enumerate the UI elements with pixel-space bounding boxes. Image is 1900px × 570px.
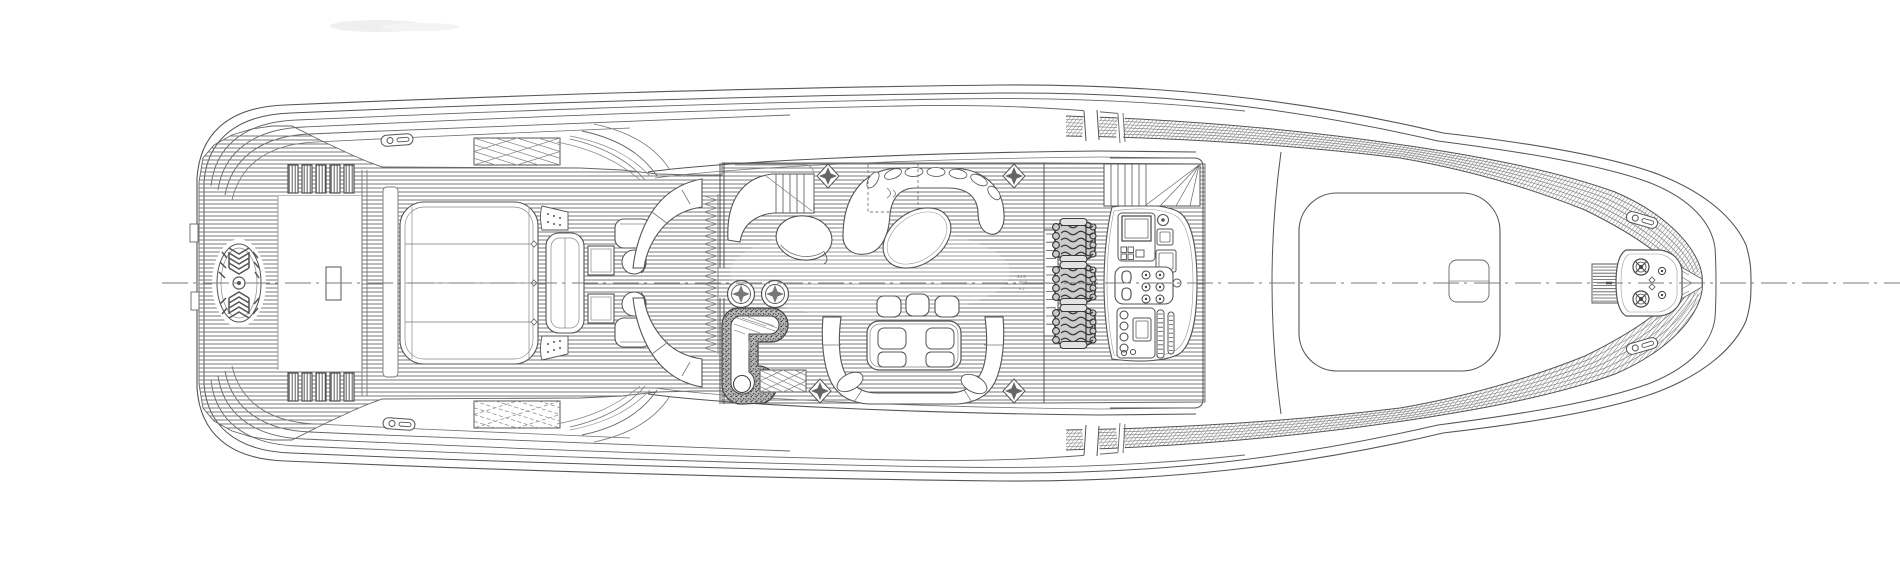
svg-text:24 6: 24 6 (1017, 274, 1026, 279)
svg-text:W 0: W 0 (1019, 280, 1027, 285)
svg-text:9 2: 9 2 (1019, 286, 1025, 291)
